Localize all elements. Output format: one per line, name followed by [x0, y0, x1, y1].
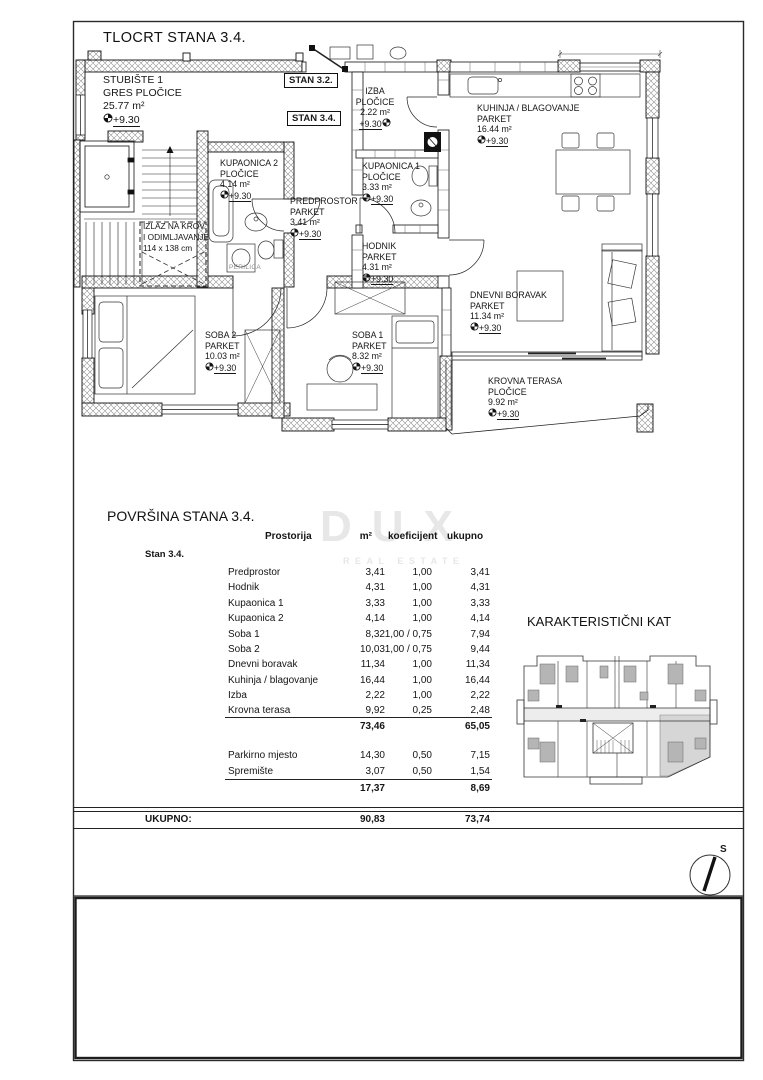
level-marker-icon [362, 273, 371, 282]
room-label-dnevni: DNEVNI BORAVAK PARKET 11.34 m² +9.30 [470, 290, 547, 333]
level-marker-icon [477, 135, 486, 144]
level-marker-icon [290, 228, 299, 237]
level-marker-icon [103, 113, 113, 123]
subtotal-rule [225, 779, 492, 780]
level-marker-icon [488, 408, 497, 417]
table-row: Kuhinja / blagovanje 16,44 1,00 16,44 [145, 675, 490, 689]
subtotal-row-1: 73,46 65,05 [145, 721, 490, 735]
room-label-kupaonica1: KUPAONICA 1 PLOČICE 3.33 m² +9.30 [362, 161, 420, 204]
table-row: Soba 1 8,32 1,00 / 0,75 7,94 [145, 629, 490, 643]
roof-exit-label: IZLAZ NA KROV I ODIMLJAVANJE 114 x 138 c… [143, 221, 209, 254]
table-row: Soba 2 10,03 1,00 / 0,75 9,44 [145, 644, 490, 658]
room-label-predprostor: PREDPROSTOR PARKET 3.41 m² +9.30 [290, 196, 358, 239]
total-rule [73, 807, 744, 808]
room-label-terasa: KROVNA TERASA PLOČICE 9.92 m² +9.30 [488, 376, 562, 419]
level-marker-icon [382, 118, 391, 127]
level-marker-icon [205, 362, 214, 371]
level-marker-icon [470, 322, 479, 331]
plan-title: TLOCRT STANA 3.4. [103, 30, 246, 46]
washer-label: PERILICA [229, 264, 261, 271]
badge-stan-34: STAN 3.4. [287, 111, 341, 126]
table-row: Dnevni boravak 11,34 1,00 11,34 [145, 659, 490, 673]
total-row: UKUPNO: 90,83 73,74 [145, 814, 490, 828]
total-rule [73, 811, 744, 812]
total-rule [73, 828, 744, 829]
level-marker-icon [352, 362, 361, 371]
table-header-row: Prostorija m² koeficijent ukupno [145, 531, 490, 545]
table-row: Parkirno mjesto 14,30 0,50 7,15 [145, 750, 490, 764]
vent-shaft [424, 132, 441, 152]
subtotal-row-2: 17,37 8,69 [145, 783, 490, 797]
mini-plan-title: KARAKTERISTIČNI KAT [527, 614, 671, 629]
table-group-row: Stan 3.4. [145, 549, 490, 563]
level-marker-icon [362, 193, 371, 202]
north-arrow-icon [690, 855, 730, 895]
table-row: Izba 2,22 1,00 2,22 [145, 690, 490, 704]
room-label-soba1: SOBA 1 PARKET 8.32 m² +9.30 [352, 330, 387, 373]
table-row: Hodnik 4,31 1,00 4,31 [145, 582, 490, 596]
elevator [80, 141, 134, 212]
table-row: Kupaonica 2 4,14 1,00 4,14 [145, 613, 490, 627]
table-row: Predprostor 3,41 1,00 3,41 [145, 567, 490, 581]
room-label-kuhinja: KUHINJA / BLAGOVANJE PARKET 16.44 m² +9.… [477, 103, 580, 146]
subtotal-rule [225, 717, 492, 718]
room-label-soba2: SOBA 2 PARKET 10.03 m² +9.30 [205, 330, 240, 373]
floor-plan-page: TLOCRT STANA 3.4. STAN 3.2. STAN 3.4. ST… [0, 0, 763, 1080]
badge-stan-32: STAN 3.2. [284, 73, 338, 88]
room-label-izba: IZBA PLOČICE 2.22 m² +9.30 [344, 86, 406, 129]
room-label-kupaonica2: KUPAONICA 2 PLOČICE 4.14 m² +9.30 [220, 158, 278, 201]
table-row: Kupaonica 1 3,33 1,00 3,33 [145, 598, 490, 612]
table-title: POVRŠINA STANA 3.4. [107, 508, 255, 524]
table-row: Spremište 3,07 0,50 1,54 [145, 766, 490, 780]
room-label-hodnik: HODNIK PARKET 4.31 m² +9.30 [362, 241, 397, 284]
level-marker-icon [220, 190, 229, 199]
north-label: S [720, 844, 727, 855]
room-label-stubiste: STUBIŠTE 1 GRES PLOČICE 25.77 m² +9.30 [103, 74, 182, 127]
mini-key-plan [517, 656, 717, 784]
